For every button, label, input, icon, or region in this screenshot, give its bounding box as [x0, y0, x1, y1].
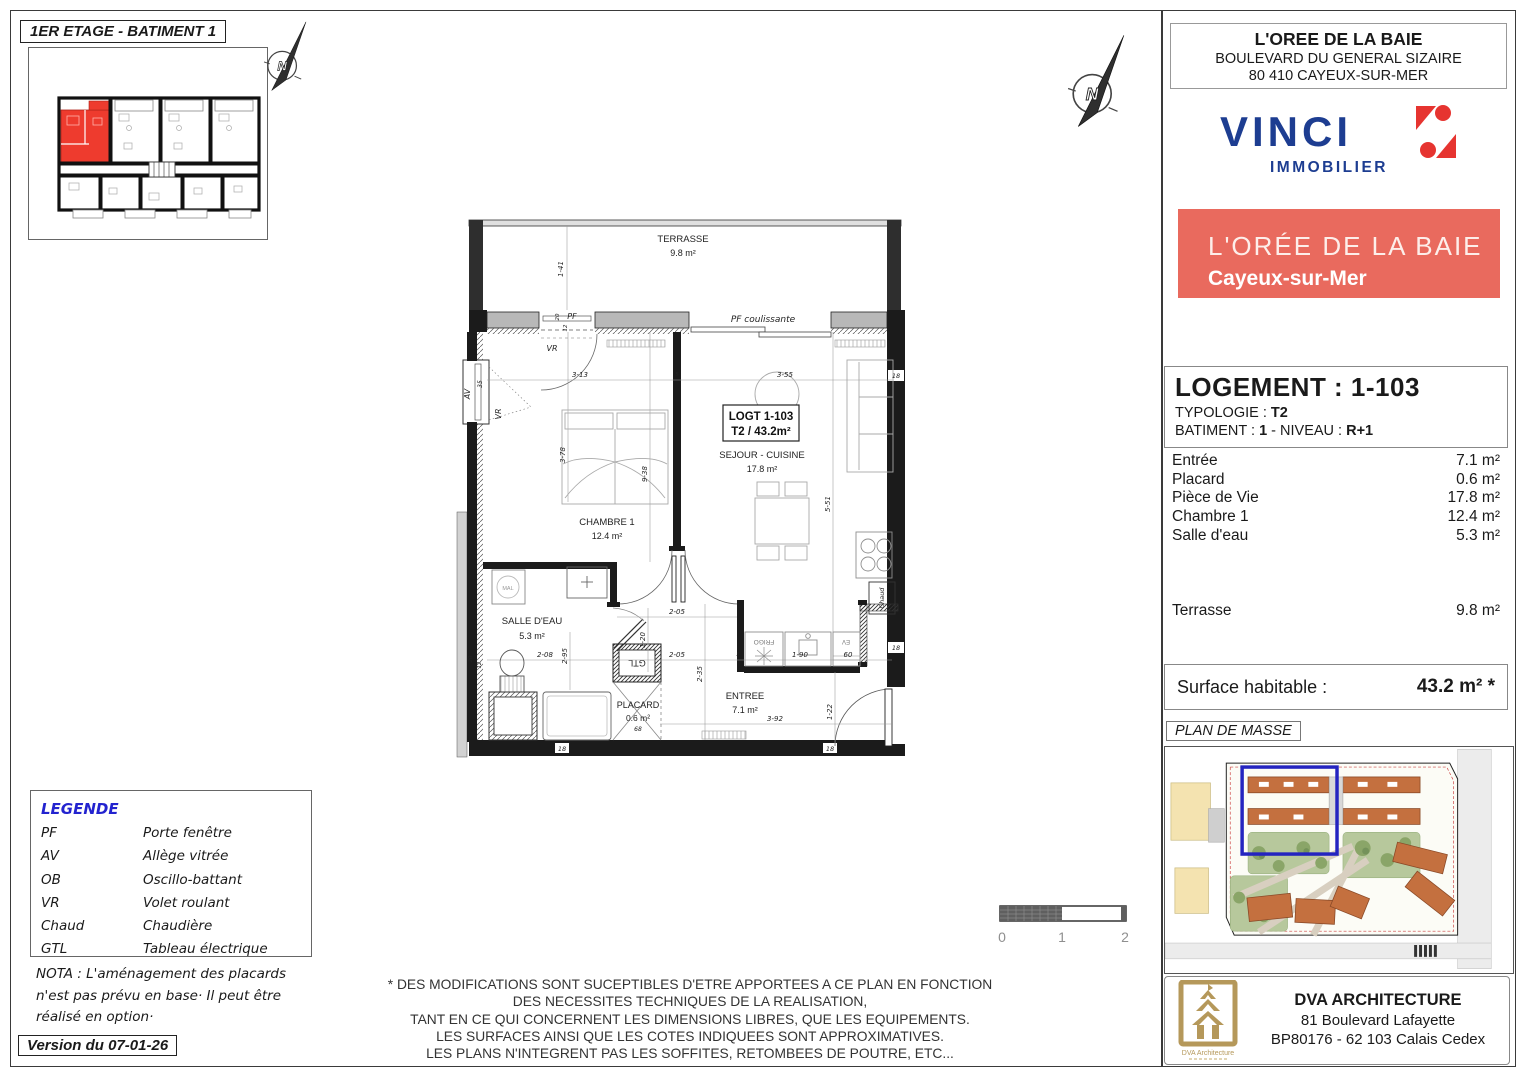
niveau-label: - NIVEAU :	[1267, 423, 1346, 439]
disclaimer-line: * DES MODIFICATIONS SONT SUCEPTIBLES D'E…	[330, 976, 1050, 993]
bed	[562, 410, 668, 504]
north-arrow-large: N	[1058, 30, 1134, 142]
north-letter: N	[1086, 84, 1100, 104]
plan-de-masse-title: PLAN DE MASSE	[1166, 721, 1301, 741]
project-city: 80 410 CAYEUX-SUR-MER	[1171, 68, 1506, 84]
room-name: Chambre 1	[1172, 508, 1249, 527]
surface-label: Surface habitable :	[1177, 677, 1327, 698]
sofa	[847, 360, 893, 472]
room-area: 0.6 m²	[1456, 471, 1500, 490]
ev-label: EV	[842, 638, 850, 644]
project-address-box: L'OREE DE LA BAIE BOULEVARD DU GENERAL S…	[1170, 23, 1507, 89]
scale-0: 0	[998, 929, 1006, 945]
legend-abbr: OB	[41, 872, 143, 888]
road-bottom	[1165, 943, 1491, 959]
vr-label-2: VR	[494, 408, 503, 419]
plan-de-masse-map	[1164, 746, 1514, 974]
unit-label-box: LOGT 1-103 T2 / 43.2m²	[723, 405, 799, 441]
dim-20b: 20	[555, 313, 561, 320]
nota-text: NOTA : L'aménagement des placards n'est …	[36, 964, 336, 1029]
architect-address2: BP80176 - 62 103 Calais Cedex	[1255, 1031, 1501, 1048]
room-name: Pièce de Vie	[1172, 489, 1259, 508]
surface-value: 43.2 m² *	[1417, 676, 1495, 698]
legend-row: GTLTableau électrique	[41, 941, 311, 957]
pf-coulissante-label: PF coulissante	[731, 315, 796, 325]
legend-row: VRVolet roulant	[41, 895, 311, 911]
dim-18a: 18	[892, 372, 900, 380]
nota-line: NOTA : L'aménagement des placards	[36, 964, 336, 986]
dim-2-08: 2-08	[537, 651, 553, 659]
vinci-logo: VINCI IMMOBILIER	[1212, 100, 1464, 190]
scale-1: 1	[1058, 929, 1066, 945]
legend-title: LEGENDE	[41, 800, 311, 818]
project-street: BOULEVARD DU GENERAL SIZAIRE	[1171, 51, 1506, 67]
room-chambre: CHAMBRE 1	[579, 517, 634, 528]
version-stamp: Version du 07-01-26	[18, 1035, 177, 1056]
dim-18c: 18	[558, 745, 566, 753]
legend-row: AVAllège vitrée	[41, 848, 311, 864]
radiator	[702, 731, 746, 739]
north-arrow-small: N	[256, 20, 314, 100]
gtl-label: GTL	[628, 658, 646, 668]
room-sejour-area: 17.8 m²	[747, 464, 778, 474]
disclaimer: * DES MODIFICATIONS SONT SUCEPTIBLES D'E…	[330, 976, 1050, 1062]
dim-9-38: 9-38	[641, 466, 649, 482]
dim-3-92: 3-92	[767, 715, 783, 723]
typologie-label: TYPOLOGIE :	[1175, 405, 1271, 421]
dim-20a: 20	[468, 655, 474, 662]
dim-2-95: 2-95	[561, 648, 569, 664]
vr-label: VR	[546, 344, 557, 353]
gtl-box: GTL	[613, 644, 661, 682]
nota-line: n'est pas prévu en base· Il peut être	[36, 986, 336, 1008]
dim-5b: 5	[736, 652, 740, 658]
disclaimer-line: LES PLANS N'INTEGRENT PAS LES SOFFITES, …	[330, 1045, 1050, 1062]
dim-35: 35	[477, 380, 484, 388]
architect-text: DVA ARCHITECTURE 81 Boulevard Lafayette …	[1255, 991, 1501, 1048]
legend-row: ChaudChaudière	[41, 918, 311, 934]
chaud-label: Chaud	[878, 587, 886, 609]
room-entree: ENTREE	[726, 691, 765, 702]
typologie-value: T2	[1271, 405, 1288, 421]
dim-3-13: 3-13	[572, 371, 588, 379]
room-terrasse: TERRASSE	[657, 234, 708, 245]
scale-bar: 0 1 2	[998, 900, 1132, 948]
room-areas-table: Entrée7.1 m² Placard0.6 m² Pièce de Vie1…	[1172, 452, 1500, 546]
unit-number: LOGT 1-103	[729, 411, 794, 423]
page-title: 1ER ETAGE - BATIMENT 1	[20, 20, 226, 43]
room-area: 5.3 m²	[1456, 527, 1500, 546]
dim-18b: 18	[892, 644, 900, 652]
room-chambre-area: 12.4 m²	[592, 531, 623, 541]
dim-12b: 12	[563, 324, 569, 331]
legend-label: Porte fenêtre	[143, 825, 232, 841]
room-terrasse-area: 9.8 m²	[670, 248, 696, 258]
building-overview-drawing	[29, 48, 267, 239]
logement-typologie: TYPOLOGIE : T2	[1175, 405, 1497, 421]
terrasse-area: 9.8 m²	[1456, 602, 1500, 620]
architect-name: DVA ARCHITECTURE	[1255, 991, 1501, 1010]
room-entree-area: 7.1 m²	[732, 705, 758, 715]
legend-abbr: VR	[41, 895, 143, 911]
dimension-labels: 1-41 3-13 3-55 5 3-78 9-38 5-51 2-08 2-9…	[468, 261, 900, 753]
niveau-value: R+1	[1346, 423, 1373, 439]
legend-abbr: AV	[41, 848, 143, 864]
room-name: Placard	[1172, 471, 1225, 490]
dim-1-20: 1-20	[639, 632, 647, 648]
building-overview-plan	[28, 47, 268, 240]
mal-label: MAL	[502, 586, 513, 592]
dim-1-22: 1-22	[826, 704, 834, 720]
table-row: Entrée7.1 m²	[1172, 452, 1500, 471]
panel-separator	[1161, 10, 1163, 1066]
program-banner: L'ORÉE DE LA BAIE Cayeux-sur-Mer	[1178, 209, 1500, 298]
dva-logo-icon: DVA Architecture	[1173, 980, 1243, 1064]
dim-18d: 18	[826, 745, 834, 753]
room-name: Entrée	[1172, 452, 1218, 471]
architect-address1: 81 Boulevard Lafayette	[1255, 1012, 1501, 1029]
chambre-door-arc	[541, 334, 597, 390]
dim-5-51: 5-51	[824, 496, 832, 512]
legend-label: Oscillo-battant	[143, 872, 242, 888]
table-row: Placard0.6 m²	[1172, 471, 1500, 490]
vinci-symbol-icon	[1416, 105, 1456, 158]
dva-logo-caption: DVA Architecture	[1182, 1050, 1235, 1057]
logement-batiment: BATIMENT : 1 - NIVEAU : R+1	[1175, 423, 1497, 439]
dim-1-41: 1-41	[557, 261, 565, 277]
room-sejour: SEJOUR - CUISINE	[719, 450, 805, 461]
road-right	[1458, 749, 1492, 968]
terrasse-name: Terrasse	[1172, 602, 1231, 620]
table-row: Pièce de Vie17.8 m²	[1172, 489, 1500, 508]
terrasse-row: Terrasse 9.8 m²	[1172, 602, 1500, 620]
facade-wall	[469, 310, 905, 347]
room-salledeau: SALLE D'EAU	[502, 616, 563, 627]
architect-block: DVA Architecture DVA ARCHITECTURE 81 Bou…	[1164, 976, 1510, 1065]
batiment-label: BATIMENT :	[1175, 423, 1259, 439]
legend-abbr: PF	[41, 825, 143, 841]
legend-label: Tableau électrique	[143, 941, 268, 957]
legend-abbr: Chaud	[41, 918, 143, 934]
highlighted-unit	[61, 101, 111, 162]
room-area: 7.1 m²	[1456, 452, 1500, 471]
room-area: 17.8 m²	[1447, 489, 1500, 508]
table-row: Chambre 112.4 m²	[1172, 508, 1500, 527]
room-salledeau-area: 5.3 m²	[519, 631, 545, 641]
room-name: Salle d'eau	[1172, 527, 1248, 546]
av-label: AV	[463, 388, 472, 400]
banner-city: Cayeux-sur-Mer	[1208, 267, 1500, 291]
dim-2-05b: 2-05	[669, 651, 685, 659]
vinci-wordmark: VINCI	[1220, 108, 1352, 155]
entry-door	[835, 689, 892, 746]
shower	[489, 692, 611, 740]
dining-table	[755, 482, 809, 560]
scale-2: 2	[1121, 929, 1129, 945]
dim-12a: 12	[477, 661, 483, 668]
frigo-label: FRIGO	[754, 638, 775, 645]
disclaimer-line: TANT EN CE QUI CONCERNENT LES DIMENSIONS…	[330, 1011, 1050, 1028]
legend-label: Chaudière	[143, 918, 212, 934]
disclaimer-line: DES NECESSITES TECHNIQUES DE LA REALISAT…	[330, 993, 1050, 1010]
logement-title: LOGEMENT : 1-103	[1175, 372, 1497, 403]
north-letter: N	[277, 58, 287, 73]
overview-stairs	[149, 162, 175, 177]
dim-1-90: 1-90	[792, 651, 808, 659]
table-row: Salle d'eau5.3 m²	[1172, 527, 1500, 546]
dim-5a: 5	[675, 372, 679, 378]
legend-label: Volet roulant	[143, 895, 230, 911]
room-placard-area: 0.6 m²	[626, 713, 650, 723]
surface-box: Surface habitable : 43.2 m² *	[1164, 664, 1508, 710]
unit-type-surface: T2 / 43.2m²	[731, 426, 791, 438]
logement-box: LOGEMENT : 1-103 TYPOLOGIE : T2 BATIMENT…	[1164, 366, 1508, 448]
floorplan: GTL	[455, 212, 915, 770]
legend-label: Allège vitrée	[143, 848, 228, 864]
room-placard: PLACARD	[617, 700, 660, 710]
dim-3-78: 3-78	[559, 447, 567, 463]
dim-3-55: 3-55	[777, 371, 793, 379]
legend-box: LEGENDE PFPorte fenêtre AVAllège vitrée …	[30, 790, 312, 957]
batiment-value: 1	[1259, 423, 1267, 439]
pf-label: PF	[567, 312, 577, 321]
legend-row: PFPorte fenêtre	[41, 825, 311, 841]
room-area: 12.4 m²	[1447, 508, 1500, 527]
banner-title: L'ORÉE DE LA BAIE	[1208, 231, 1500, 262]
dim-68: 68	[634, 726, 642, 733]
vinci-sub-wordmark: IMMOBILIER	[1270, 159, 1388, 176]
dim-2-05a: 2-05	[669, 608, 685, 616]
project-name: L'OREE DE LA BAIE	[1171, 29, 1506, 50]
dim-2-35: 2-35	[696, 666, 704, 682]
nota-line: réalisé en option·	[36, 1007, 336, 1029]
dim-60: 60	[844, 651, 853, 659]
disclaimer-line: LES SURFACES AINSI QUE LES COTES INDIQUE…	[330, 1028, 1050, 1045]
legend-abbr: GTL	[41, 941, 143, 957]
legend-row: OBOscillo-battant	[41, 872, 311, 888]
